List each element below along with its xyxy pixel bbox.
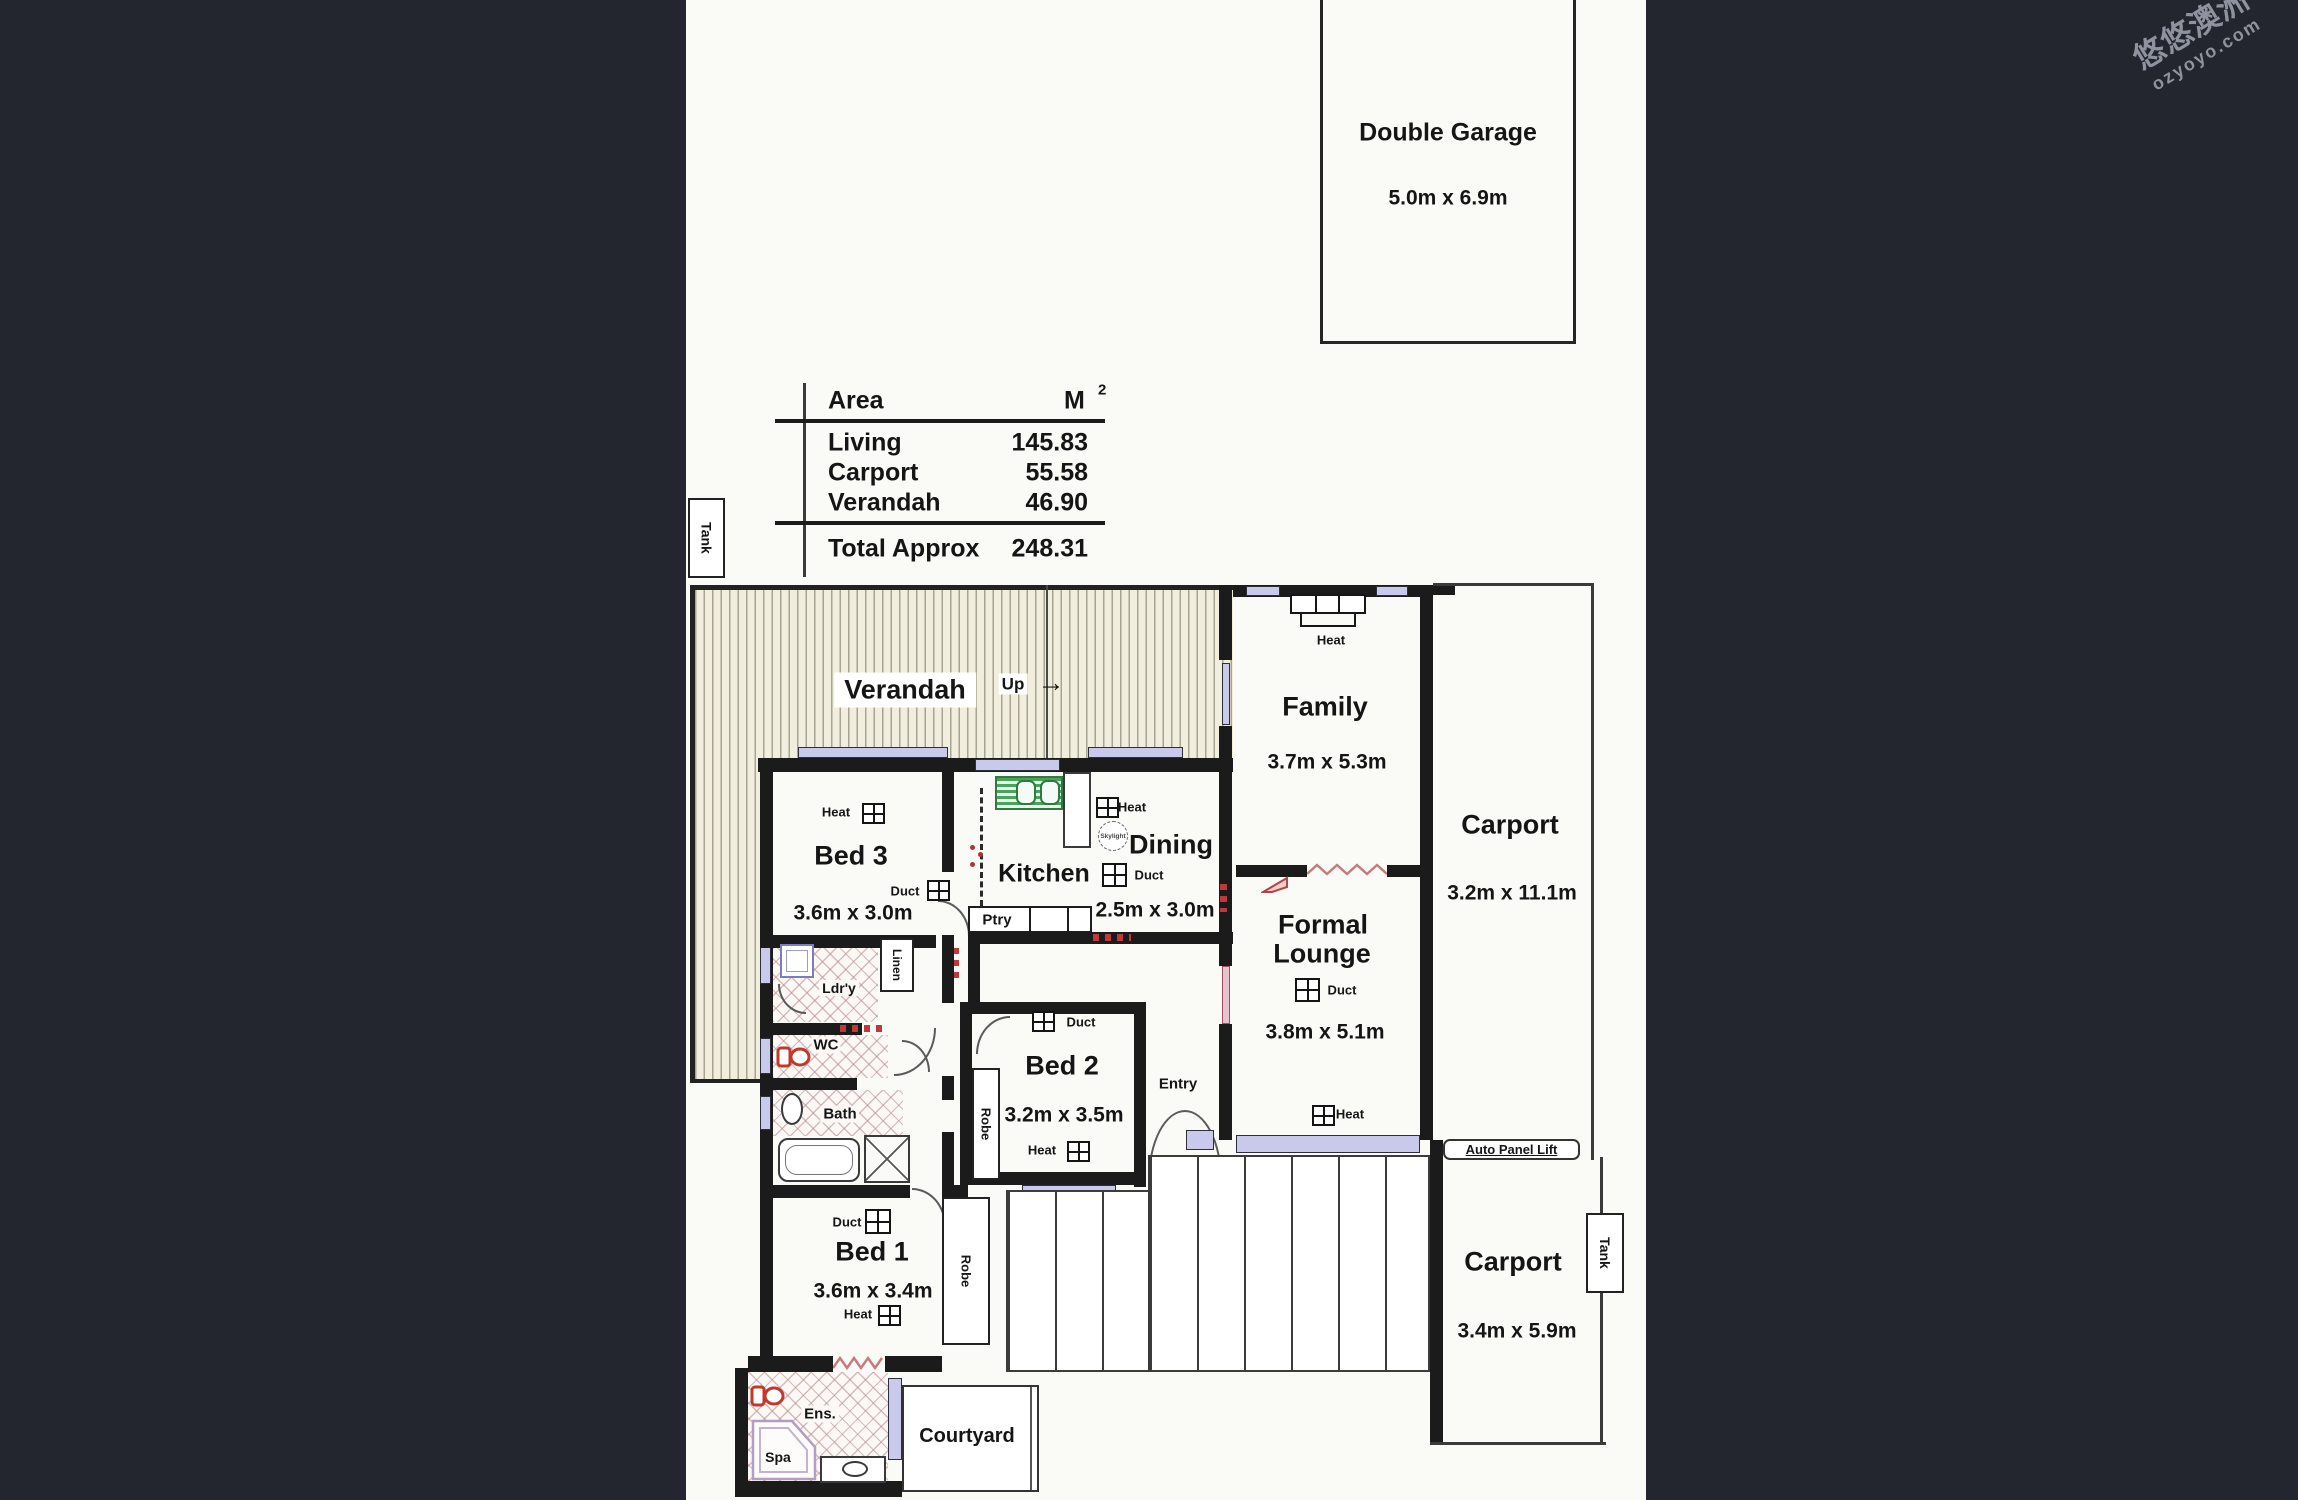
table-row-label: Carport [828, 461, 918, 486]
door-arc [938, 900, 970, 936]
heat-vent-icon [1312, 1105, 1335, 1126]
carport-boundary [1591, 583, 1594, 1160]
wall [1219, 726, 1232, 878]
heat-label: Heat [1118, 801, 1146, 814]
duct-label: Duct [891, 885, 920, 898]
skylight-icon: Skylight [1098, 821, 1128, 851]
room-bed3-dims: 3.6m x 3.0m [793, 903, 912, 924]
toilet-icon [750, 1383, 786, 1409]
heat-label: Heat [844, 1308, 872, 1321]
table-row-label: Verandah [828, 491, 941, 516]
point-marker [970, 845, 975, 850]
entry-step [1186, 1130, 1214, 1150]
kitchen-dashed-partition [980, 788, 985, 906]
door-arc [912, 1188, 946, 1226]
verandah-label: Verandah [834, 673, 976, 708]
wall [942, 1076, 954, 1100]
laundry-label: Ldr'y [819, 980, 859, 996]
fireplace-hearth-icon [1300, 614, 1356, 627]
courtyard-label: Courtyard [919, 1426, 1015, 1446]
room-bed3-name: Bed 3 [814, 843, 888, 870]
window-band [1236, 1135, 1420, 1153]
basin-icon [842, 1461, 868, 1477]
wall [968, 944, 980, 1002]
unit-m: M [1064, 387, 1085, 415]
table-left-rule [803, 383, 806, 577]
spa-label: Spa [765, 1450, 791, 1464]
room-carport-rear-dims: 3.4m x 5.9m [1457, 1321, 1576, 1342]
wall [735, 1368, 748, 1497]
room-carport-side-name: Carport [1461, 812, 1559, 839]
heat-label: Heat [1028, 1144, 1056, 1157]
washer-icon [780, 944, 814, 978]
room-carport-rear-name: Carport [1464, 1249, 1562, 1276]
wall [1430, 1140, 1443, 1445]
window-band-vertical [888, 1378, 902, 1460]
room-family-name: Family [1282, 694, 1368, 721]
table-row-value: 145.83 [938, 431, 1088, 456]
heat-vent-icon [862, 803, 885, 824]
door-panel [1222, 966, 1230, 1024]
duct-vent-icon [865, 1209, 891, 1234]
wall [735, 1481, 902, 1497]
heat-label: Heat [822, 806, 850, 819]
heat-label: Heat [1336, 1108, 1364, 1121]
up-arrow-icon: → [1038, 670, 1065, 697]
window [1246, 586, 1280, 596]
kitchen-bench-icon [1063, 772, 1091, 848]
window-vertical [760, 1096, 771, 1130]
wall [767, 1078, 857, 1090]
room-dining-dims: 2.5m x 3.0m [1095, 900, 1214, 921]
floorplan-scan: 悠悠澳洲 ozyoyo.com Double Garage 5.0m x 6.9… [0, 0, 2298, 1500]
carport-boundary [1600, 1157, 1603, 1445]
duct-label: Duct [1328, 984, 1357, 997]
table-row-label: Living [828, 431, 902, 456]
duct-vent-icon [1295, 978, 1320, 1002]
room-lounge-dims: 3.8m x 5.1m [1265, 1022, 1384, 1043]
wall [1219, 585, 1232, 660]
wall [960, 1002, 972, 1185]
basin-icon [781, 1093, 803, 1125]
window [1376, 586, 1408, 596]
tank-left-label: Tank [700, 522, 714, 554]
shower-icon [864, 1135, 910, 1183]
opening-dash [1220, 884, 1227, 912]
heat-vent-icon [1067, 1141, 1090, 1162]
verandah-side-strip [690, 760, 763, 1083]
duct-label: Duct [833, 1216, 862, 1229]
garage-name: Double Garage [1359, 121, 1537, 146]
duct-vent-icon [1032, 1011, 1055, 1032]
double-garage-outline [1320, 0, 1576, 344]
wc-label: WC [812, 1037, 841, 1054]
table-total-value: 248.31 [938, 537, 1088, 562]
sink-bowl-icon [1016, 780, 1036, 805]
bathtub-icon [778, 1138, 860, 1182]
heat-vent-icon [1096, 797, 1119, 818]
wall [748, 1356, 833, 1372]
room-bed2-name: Bed 2 [1025, 1053, 1099, 1080]
window-bar [798, 747, 948, 758]
up-label: Up [999, 674, 1028, 695]
wall [1420, 585, 1433, 1140]
table-row-value: 55.58 [938, 461, 1088, 486]
fireplace-icon [1290, 594, 1366, 614]
point-marker [978, 852, 983, 857]
skylight-label: Skylight [1100, 833, 1125, 840]
opening-zigzag [833, 1354, 885, 1372]
tank-right-box: Tank [1586, 1213, 1624, 1293]
window-vertical [1222, 663, 1230, 725]
auto-panel-lift-door: Auto Panel Lift [1443, 1139, 1580, 1160]
room-kitchen-name: Kitchen [998, 862, 1090, 887]
room-bed1-name: Bed 1 [835, 1239, 909, 1266]
bed1-robe: Robe [942, 1197, 990, 1345]
table-header-area: Area [828, 389, 884, 414]
heat-vent-icon [878, 1305, 901, 1326]
heat-label: Heat [1317, 634, 1345, 647]
duct-label: Duct [1135, 869, 1164, 882]
window [975, 759, 1060, 771]
wall [942, 935, 954, 1003]
watermark: 悠悠澳洲 ozyoyo.com [2090, 0, 2298, 116]
room-lounge-name-2: Lounge [1273, 941, 1370, 968]
wall [760, 1185, 910, 1198]
linen-label: Linen [891, 949, 903, 981]
table-header-unit: M [1064, 389, 1085, 414]
room-dining-name: Dining [1129, 832, 1213, 859]
wall [942, 772, 954, 872]
table-row-value: 46.90 [938, 491, 1088, 516]
courtyard-inner-line [1030, 1387, 1032, 1490]
toilet-icon [776, 1044, 812, 1070]
door-arc [976, 1016, 1010, 1054]
window-vertical [760, 1038, 771, 1074]
duct-vent-icon [1102, 863, 1127, 887]
door-leaf-icon [1261, 876, 1289, 894]
deck-area [1006, 1190, 1150, 1372]
entry-label: Entry [1159, 1077, 1197, 1092]
window-bar [1088, 747, 1183, 758]
plan-page: Double Garage 5.0m x 6.9m Area M 2 Livin… [686, 0, 1646, 1500]
auto-panel-lift-label: Auto Panel Lift [1466, 1142, 1558, 1157]
room-carport-side-dims: 3.2m x 11.1m [1447, 883, 1577, 904]
duct-vent-icon [927, 880, 950, 901]
bed2-robe: Robe [972, 1068, 1000, 1180]
table-header-unit-sup: 2 [1098, 383, 1106, 398]
room-family-dims: 3.7m x 5.3m [1267, 752, 1386, 773]
carport-boundary [1433, 583, 1593, 586]
window-vertical [760, 944, 771, 984]
robe-label: Robe [960, 1255, 973, 1288]
wall [1387, 865, 1420, 877]
wall [885, 1356, 942, 1372]
bath-label: Bath [820, 1106, 859, 1123]
opening-zigzag [1307, 861, 1387, 878]
sink-bowl-icon [1040, 780, 1060, 805]
table-rule-2 [775, 521, 1105, 525]
robe-label: Robe [980, 1108, 993, 1141]
room-bed2-dims: 3.2m x 3.5m [1004, 1105, 1123, 1126]
opening-dash [1093, 934, 1131, 941]
deck-area [1148, 1155, 1430, 1372]
linen-closet: Linen [880, 938, 914, 992]
opening-dash [840, 1025, 882, 1032]
tank-right-label: Tank [1598, 1237, 1612, 1269]
wall [1134, 1002, 1146, 1187]
room-lounge-name-1: Formal [1278, 912, 1368, 939]
garage-dims: 5.0m x 6.9m [1388, 188, 1507, 209]
point-marker [970, 862, 975, 867]
pantry-label: Ptry [982, 913, 1011, 928]
tank-left-box: Tank [688, 498, 725, 578]
table-rule-1 [775, 419, 1105, 423]
carport-boundary [1430, 1442, 1606, 1445]
room-bed1-dims: 3.6m x 3.4m [813, 1281, 932, 1302]
wall [1219, 1024, 1232, 1140]
duct-label: Duct [1067, 1016, 1096, 1029]
